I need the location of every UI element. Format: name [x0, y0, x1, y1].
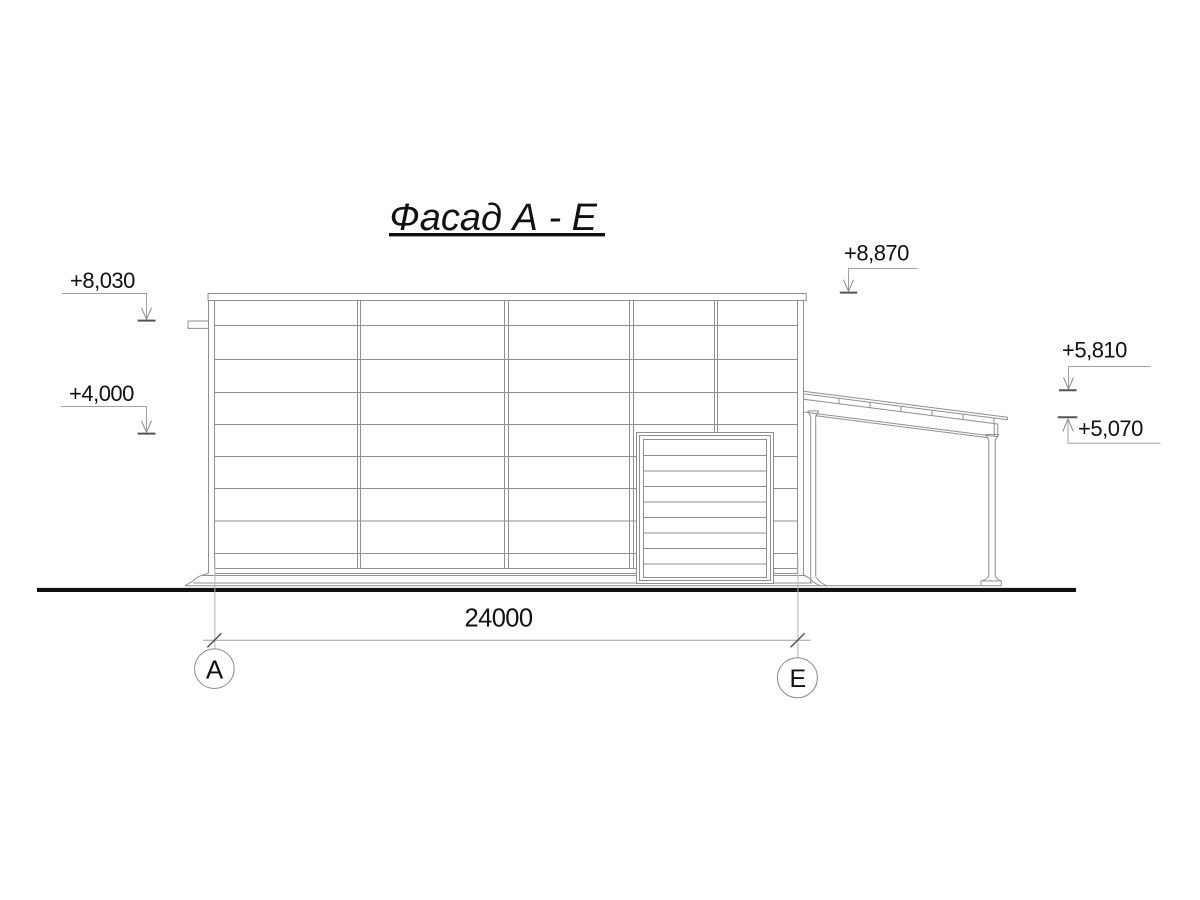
svg-text:+5,070: +5,070 [1078, 416, 1143, 441]
svg-text:А: А [206, 654, 224, 684]
svg-text:Е: Е [790, 665, 807, 693]
svg-text:Фасад А - Е: Фасад А - Е [390, 197, 598, 239]
svg-text:+8,870: +8,870 [844, 241, 909, 266]
svg-text:+5,810: +5,810 [1062, 338, 1127, 363]
svg-text:+4,000: +4,000 [69, 381, 134, 406]
svg-text:24000: 24000 [465, 605, 533, 633]
svg-text:+8,030: +8,030 [70, 268, 135, 293]
